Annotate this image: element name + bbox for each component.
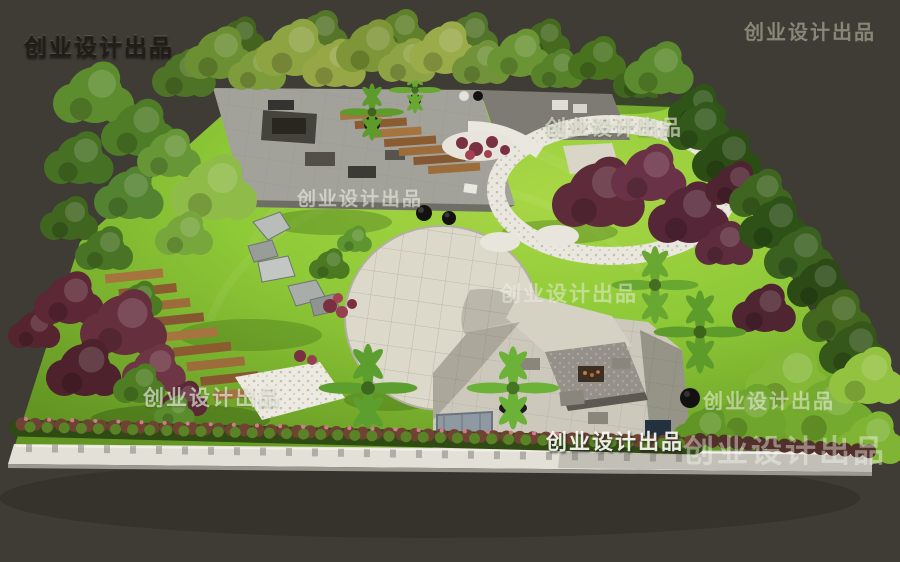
white-chair xyxy=(463,183,477,194)
garden-scene xyxy=(0,0,900,562)
garden-render-image: 创业设计出品 创业设计出品 创业设计出品 创业设计出品 创业设计出品 创业设计出… xyxy=(0,0,900,562)
patio-chair xyxy=(573,104,587,113)
patio-table xyxy=(552,100,568,110)
